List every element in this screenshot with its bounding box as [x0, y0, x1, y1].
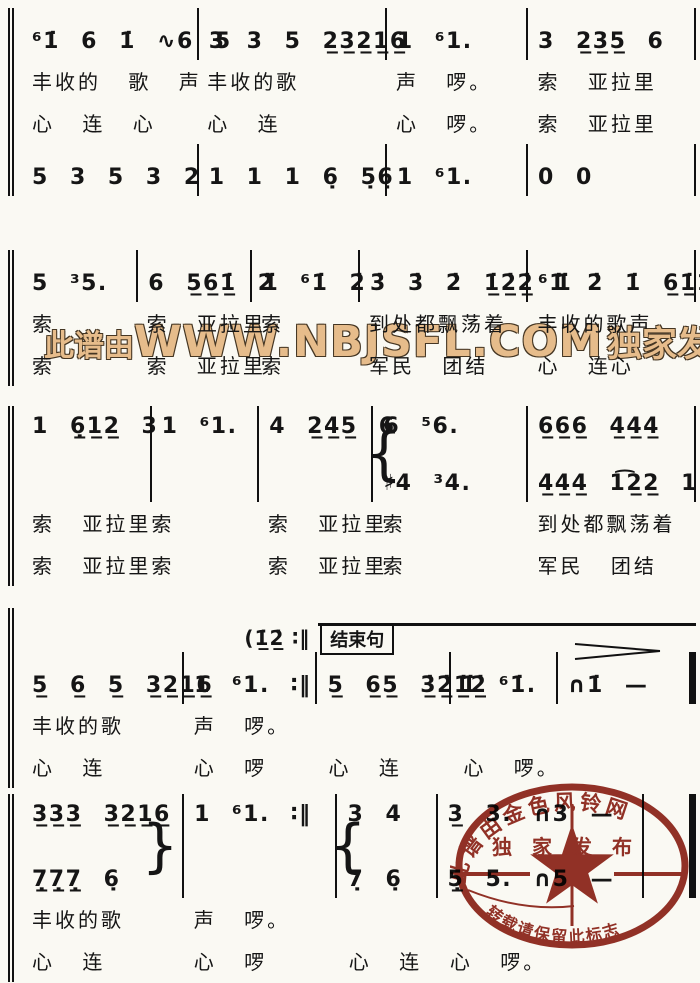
lyric-measure: 心 连	[22, 940, 184, 982]
lyric-measure: 心 连 心	[22, 102, 197, 144]
measure: 5̲ 6̲5̲ 3̲̇2̲̇1̲̇2̲̇	[315, 652, 448, 704]
system-1: ⁶1̇ 6 1̇ ∿6 53 3 5 2̲3̲2̲1̲6̲1 ⁶1.3 2̲3̲…	[8, 8, 696, 196]
lyric-measure: 心 啰	[184, 940, 339, 982]
lyric-measure: 索 亚拉里	[527, 60, 696, 102]
measure: 5̲ 6̲ 5̲ 3̲2̲1̲6̲	[22, 652, 182, 704]
lyric-measure: 声 啰。	[184, 704, 319, 746]
lyrics-row: 心 连 心心 连心 啰。索 亚拉里	[22, 102, 696, 144]
lyrics-row: 丰收的 歌 声丰收的歌声 啰。索 亚拉里	[22, 60, 696, 102]
voice-bottom: ♯4 ³4.	[383, 471, 471, 496]
system-4: (1̲̇2̲̇ ∶‖结束句5̲ 6̲ 5̲ 3̲2̲1̲6̲1 ⁶1. ∶‖5̲…	[8, 608, 696, 788]
voice-top: 6 ⁵6.	[383, 414, 459, 439]
lyric-measure: 心 连	[22, 746, 184, 788]
sheet-music-page: 此谱由WWW.NBJSFL.COM独家发布 ⁶1̇ 6 1̇ ∿6 53 3 5…	[0, 0, 700, 983]
ending-cue-row: (1̲̇2̲̇ ∶‖结束句	[22, 608, 696, 652]
measure: 1 ⁶1.	[385, 144, 526, 196]
lyrics-row: 索索 亚拉里索到处都飘荡着丰收的歌声	[22, 302, 696, 344]
decrescendo-hairpin-icon	[574, 642, 662, 660]
lyric-measure: 索 亚拉里索	[22, 544, 150, 586]
lyric-measure: 到处都飘荡着	[527, 502, 696, 544]
measure: 5 ³5.	[22, 250, 136, 302]
measure: 1 ⁶1. ∶‖	[182, 652, 315, 704]
notes-row: 1 6̲̣1̲2̲ 31 ⁶1.4 2̲4̲5̲ 66 ⁵6.♯4 ³4.6̲6…	[22, 406, 696, 502]
measure: 1 ⁶1.	[385, 8, 526, 60]
lyric-measure: 军民 团结	[359, 344, 528, 386]
lyric-measure	[150, 502, 258, 544]
ending-bracket: 结束句	[318, 623, 696, 652]
measure: 1 ⁶1.	[150, 406, 258, 502]
measure: ⁶1̇ 2̇ 1̇ 6̲1̲̇1̲̇ 6	[526, 250, 694, 302]
lyric-measure: 丰收的歌声	[527, 302, 696, 344]
lyrics-row: 索 亚拉里索索 亚拉里索军民 团结	[22, 544, 696, 586]
lyric-measure: 索	[22, 302, 137, 344]
lyrics-row: 索索 亚拉里索军民 团结心 连心	[22, 344, 696, 386]
lyrics-row: 丰收的歌声 啰。	[22, 704, 696, 746]
measure: 6 5̲6̲1̲̇ 2̇	[136, 250, 250, 302]
lyric-measure: 丰收的歌	[22, 704, 184, 746]
lyric-measure: 心 连心	[527, 344, 696, 386]
lyric-measure: 丰收的歌	[197, 60, 386, 102]
measure: 0 0	[526, 144, 694, 196]
measure: 1 6̲̣1̲2̲ 3	[22, 406, 150, 502]
lyric-measure: 心 连	[197, 102, 386, 144]
lyric-measure: 军民 团结	[527, 544, 696, 586]
measure: 6 ⁵6.♯4 ³4.	[371, 406, 526, 502]
measure: 1 1 1 6̣ 5̣6̣	[197, 144, 385, 196]
lyric-measure: 索 亚拉里	[527, 102, 696, 144]
measure: 4 2̲4̲5̲ 6	[257, 406, 371, 502]
notes-row: 5 ³5.6 5̲6̲1̲̇ 2̇1̇ ⁶1̇ 2̇3̇ 3̇ 2̇ 1̲̇2̲…	[22, 250, 696, 302]
lyrics-row: 索 亚拉里索索 亚拉里索到处都飘荡着	[22, 502, 696, 544]
lyric-measure: 索	[251, 302, 359, 344]
lyric-measure	[150, 544, 258, 586]
lyric-measure: 索	[372, 502, 527, 544]
ending-label: 结束句	[320, 626, 394, 655]
lyric-measure	[561, 704, 696, 746]
stamp-bottom-text: 转载请保留此标志	[483, 902, 623, 946]
lyric-measure: 索	[22, 344, 137, 386]
lyric-measure	[339, 898, 440, 940]
lyric-measure: 到处都飘荡着	[359, 302, 528, 344]
lyric-measure: 声 啰。	[184, 898, 339, 940]
measure: 5 3 5 3 2	[22, 144, 197, 196]
lyric-measure: 心 啰	[184, 746, 319, 788]
voice-top: 6̲6̲6̲ 4̲4̲4̲	[538, 414, 660, 439]
lyric-measure: 索 亚拉里	[137, 344, 252, 386]
repeat-pickup-notes: (1̲̇2̲̇ ∶‖	[244, 626, 310, 652]
lyric-measure: 索	[251, 344, 359, 386]
lyric-measure: 索 亚拉里	[258, 544, 373, 586]
lyric-measure: 声 啰。	[386, 60, 528, 102]
publisher-stamp: 此谱由金色风铃网 独家发布 转载请保留此标志	[450, 778, 694, 952]
measure: 1̇ ⁶1̇ 2̇	[250, 250, 358, 302]
measure: ⁶1̇ 6 1̇ ∿6 5	[22, 8, 197, 60]
voice-bottom: 7̲̣7̲̣7̲̣ 6̣	[32, 867, 120, 892]
voice-top: 3 4	[347, 802, 402, 827]
measure: 3̲3̲3̲ 3̲2̲1̲6̲7̲̣7̲̣7̲̣ 6̣	[22, 794, 182, 898]
measure: 1̇ ⁶1̇.	[449, 652, 556, 704]
voice-top: 3̲3̲3̲ 3̲2̲1̲6̲	[32, 802, 171, 827]
lyric-measure: 索 亚拉里	[137, 302, 252, 344]
lyric-measure: 索	[372, 544, 527, 586]
lyric-measure: 心 啰。	[386, 102, 528, 144]
voice-bottom: 7̣ 6̣	[347, 867, 402, 892]
notes-row: ⁶1̇ 6 1̇ ∿6 53 3 5 2̲3̲2̲1̲6̲1 ⁶1.3 2̲3̲…	[22, 8, 696, 60]
measure: 6̲6̲6̲ 4̲4̲4̲4̲4̲4̲ 1͡2̲2̲ 1	[526, 406, 694, 502]
lyric-measure	[453, 704, 561, 746]
measure: 3 2̲3̲5̲ 6	[526, 8, 694, 60]
system-2: 5 ³5.6 5̲6̲1̲̇ 2̇1̇ ⁶1̇ 2̇3̇ 3̇ 2̇ 1̲̇2̲…	[8, 250, 696, 386]
measure: 1 ⁶1. ∶‖	[182, 794, 335, 898]
measure: 3 3 5 2̲3̲2̲1̲6̲	[197, 8, 385, 60]
lyric-measure: 心 连	[319, 746, 454, 788]
lyric-measure	[319, 704, 454, 746]
lyric-measure: 索 亚拉里	[258, 502, 373, 544]
lyric-measure: 索 亚拉里索	[22, 502, 150, 544]
system-3: 1 6̲̣1̲2̲ 31 ⁶1.4 2̲4̲5̲ 66 ⁵6.♯4 ³4.6̲6…	[8, 406, 696, 586]
measure: 3̇ 3̇ 2̇ 1̲̇2̲̇2̲̇ 1̇	[358, 250, 526, 302]
measure: 3 47̣ 6̣	[335, 794, 435, 898]
notes-row: 5 3 5 3 21 1 1 6̣ 5̣6̣1 ⁶1.0 0	[22, 144, 696, 196]
lyric-measure: 丰收的 歌 声	[22, 60, 197, 102]
lyric-measure: 丰收的歌	[22, 898, 184, 940]
lyric-measure: 心 连	[339, 940, 440, 982]
stamp-mid-text: 独家发布	[492, 835, 652, 859]
stamp-bottom-text-holder: 转载请保留此标志	[483, 902, 623, 946]
voice-bottom: 4̲4̲4̲ 1͡2̲2̲ 1	[538, 471, 698, 496]
